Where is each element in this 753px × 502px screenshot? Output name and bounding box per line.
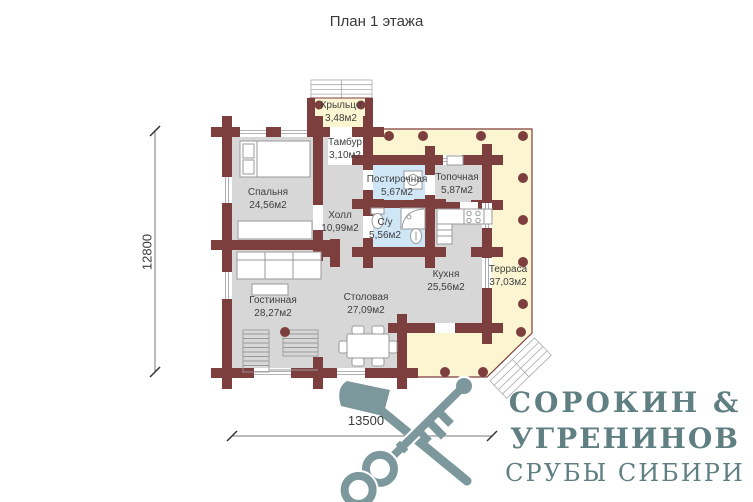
room-label-kitchen: Кухня 25,56м2 [427, 269, 464, 294]
room-area: 3,48м2 [321, 113, 362, 126]
room-label-bedroom: Спальня 24,56м2 [248, 187, 288, 212]
room-area: 5,87м2 [435, 185, 478, 198]
sofa-icon [237, 252, 321, 279]
dimension-line-horizontal [227, 431, 497, 441]
porch-steps [311, 80, 372, 99]
floor-plan-page: План 1 этажа [0, 0, 753, 502]
dimension-width-label: 13500 [348, 413, 384, 428]
room-label-porch: Крыльцо 3,48м2 [321, 100, 362, 125]
room-name: Тамбур [328, 137, 362, 150]
room-name: Постирочная [367, 174, 428, 187]
room-label-laundry: Постирочная 5,67м2 [367, 174, 428, 199]
room-area: 5,67м2 [367, 187, 428, 200]
room-name: Столовая [344, 292, 389, 305]
boiler-icon [447, 156, 463, 165]
dimension-height-label: 12800 [140, 234, 155, 270]
room-name: Гостинная [249, 295, 297, 308]
room-label-living-room: Гостинная 28,27м2 [249, 295, 297, 320]
sink-icon [411, 229, 422, 244]
room-label-dining-room: Столовая 27,09м2 [344, 292, 389, 317]
axe-key-logo-icon [339, 369, 487, 502]
room-name: Спальня [248, 187, 288, 200]
room-area: 24,56м2 [248, 200, 288, 213]
room-name: Холл [321, 210, 358, 223]
room-area: 28,27м2 [249, 308, 297, 321]
room-label-tambour: Тамбур 3,10м2 [328, 137, 362, 162]
room-label-bathroom: С/у 5,56м2 [369, 217, 401, 242]
room-name: Терраса [489, 264, 527, 277]
room-label-terrace: Терраса 37,03м2 [489, 264, 527, 289]
coffee-table-icon [252, 284, 288, 295]
brand-logo: СОРОКИН & УГРЕНИНОВ СРУБЫ СИБИРИ [497, 386, 753, 490]
room-area: 3,10м2 [328, 150, 362, 163]
room-area: 25,56м2 [427, 282, 464, 295]
logo-line-2: УГРЕНИНОВ [497, 420, 753, 457]
room-area: 37,03м2 [489, 277, 527, 290]
room-label-boiler-room: Топочная 5,87м2 [435, 172, 478, 197]
dresser-icon [238, 221, 312, 239]
room-name: С/у [369, 217, 401, 230]
logo-line-3: СРУБЫ СИБИРИ [497, 457, 753, 490]
room-area: 10,99м2 [321, 223, 358, 236]
room-area: 27,09м2 [344, 305, 389, 318]
stair-post [280, 327, 290, 337]
room-name: Кухня [427, 269, 464, 282]
room-area: 5,56м2 [369, 230, 401, 243]
logo-line-1: СОРОКИН & [497, 386, 753, 420]
room-label-hall: Холл 10,99м2 [321, 210, 358, 235]
room-name: Крыльцо [321, 100, 362, 113]
room-name: Топочная [435, 172, 478, 185]
bed-icon [240, 141, 310, 177]
shower-icon [401, 208, 425, 229]
